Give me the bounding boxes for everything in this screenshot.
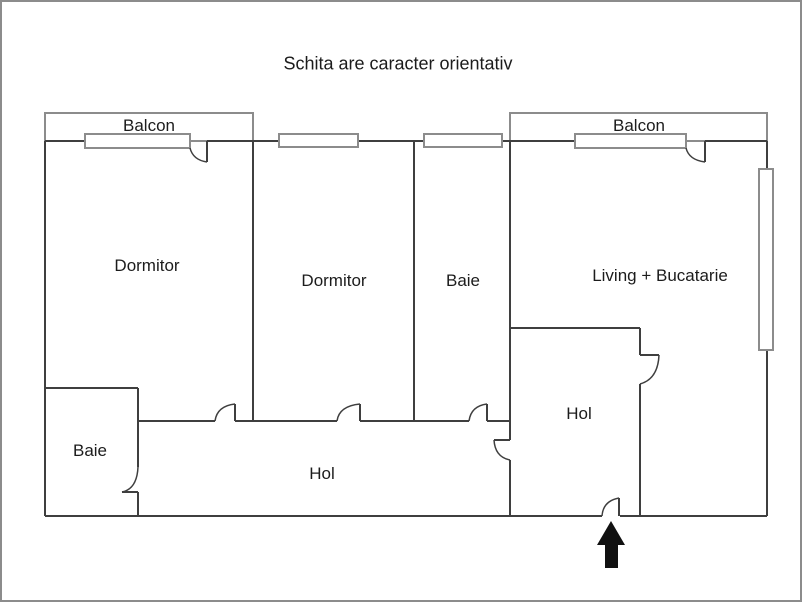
door-arc	[494, 440, 510, 460]
room-label-dormitor-1: Dormitor	[114, 256, 179, 276]
room-label-living-bucatarie: Living + Bucatarie	[592, 266, 728, 286]
door-arc	[686, 148, 705, 162]
page-title: Schita are caracter orientativ	[283, 54, 512, 75]
room-label-hol-corridor: Hol	[309, 464, 335, 484]
window	[85, 134, 190, 148]
window	[279, 134, 358, 147]
room-label-baie-bottom: Baie	[73, 441, 107, 461]
window	[424, 134, 502, 147]
floor-plan-svg	[2, 2, 802, 602]
floor-plan-page: Schita are caracter orientativ BalconBal…	[0, 0, 802, 602]
door-arc	[469, 404, 487, 421]
door-arc	[215, 404, 235, 421]
door-arc	[190, 148, 207, 162]
door-arc	[122, 467, 138, 492]
entrance-arrow	[597, 521, 625, 568]
door-arc	[602, 498, 619, 516]
window	[575, 134, 686, 148]
room-label-balcon-right: Balcon	[613, 116, 665, 136]
door-arc	[640, 355, 659, 384]
room-label-balcon-left: Balcon	[123, 116, 175, 136]
room-label-hol-entrance: Hol	[566, 404, 592, 424]
window	[759, 169, 773, 350]
room-label-baie-top: Baie	[446, 271, 480, 291]
room-label-dormitor-2: Dormitor	[301, 271, 366, 291]
door-arc	[337, 404, 360, 421]
